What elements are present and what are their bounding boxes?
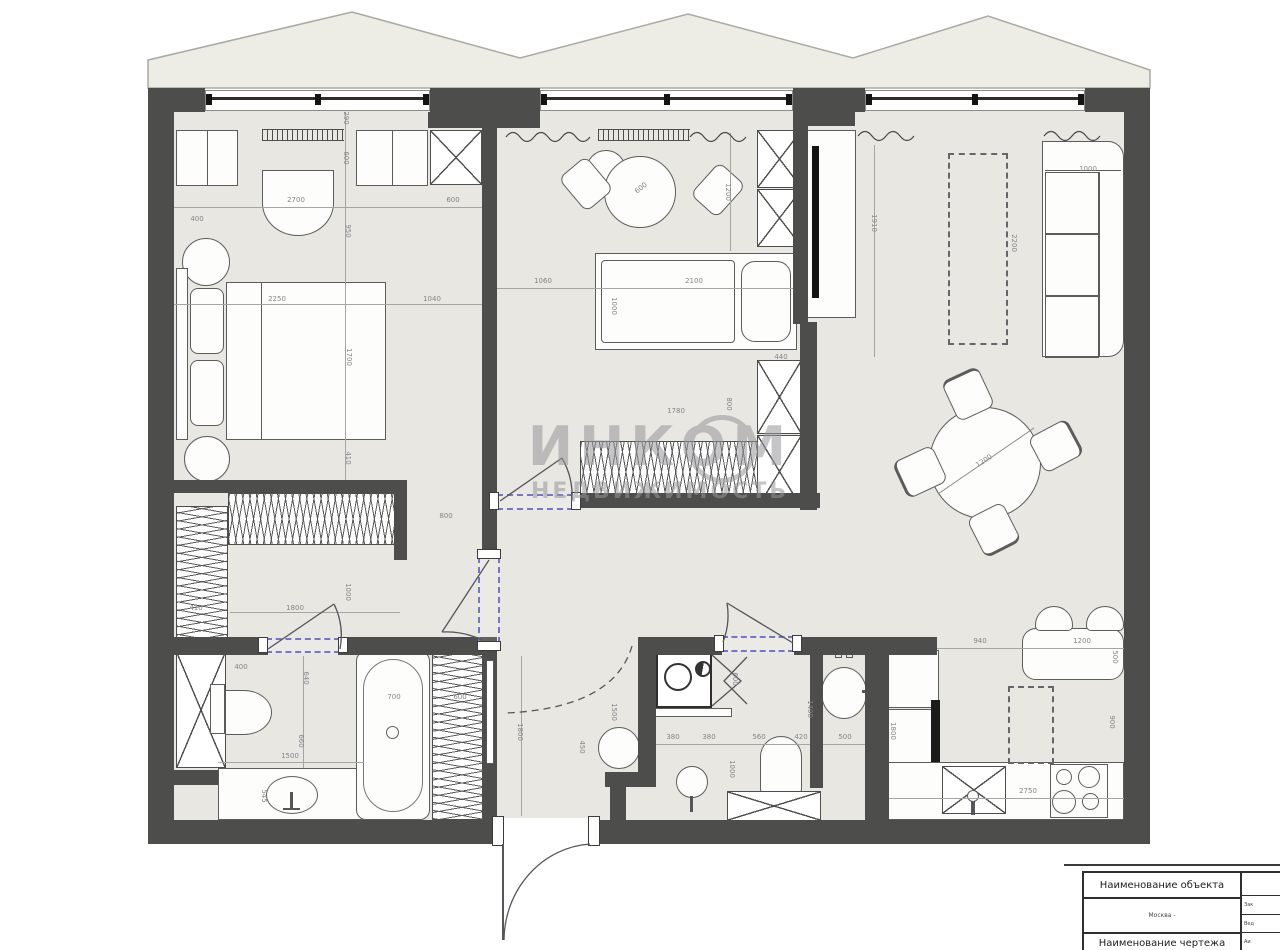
door-opening-dashed	[266, 638, 340, 653]
wall	[148, 637, 268, 655]
door-opening-dashed	[478, 557, 500, 643]
shower-stand	[690, 796, 693, 812]
door-jamb	[477, 549, 501, 559]
dim-label: 420	[794, 733, 807, 741]
title-block-header: Наименование объекта	[1084, 873, 1240, 899]
wardrobe-box	[430, 130, 482, 185]
dim-label: 410	[344, 451, 352, 464]
dim-label: 1800	[516, 723, 524, 741]
dim-label: 1800	[889, 722, 897, 740]
dim-label: 940	[973, 637, 986, 645]
dim-label: 410	[189, 604, 202, 612]
mattress	[601, 260, 735, 343]
door-jamb	[792, 635, 802, 652]
pillow	[741, 261, 791, 342]
burner	[1052, 790, 1076, 814]
dim-label: 1000	[610, 297, 618, 315]
washer-drum	[664, 663, 692, 691]
sofa-seat	[1045, 234, 1099, 296]
title-block-side-spacer	[1242, 873, 1280, 896]
sink	[821, 667, 867, 719]
dim-line	[230, 612, 400, 613]
balcony-zigzag	[148, 12, 1150, 88]
window-post	[423, 94, 429, 105]
dim-label: 1200	[1073, 637, 1091, 645]
dim-label: 1400	[806, 700, 814, 718]
wall	[810, 655, 823, 788]
layout-zone-dashed	[948, 153, 1008, 345]
dim-label: 640	[302, 671, 310, 684]
washer-dial	[695, 661, 711, 677]
dim-label: 800	[439, 512, 452, 520]
window	[865, 90, 1085, 111]
dim-label: 1060	[534, 277, 552, 285]
dim-label: 560	[752, 733, 765, 741]
dim-label: 900	[1108, 715, 1116, 728]
closet-hanging-rail	[228, 493, 400, 545]
sofa-seat	[1045, 296, 1099, 358]
dim-label: 400	[190, 215, 203, 223]
door-jamb	[489, 492, 499, 510]
dim-label: 600	[731, 672, 739, 685]
dim-label: 2750	[1019, 787, 1037, 795]
title-block-footer: Наименование чертежа	[1084, 934, 1240, 950]
master-bed	[226, 282, 386, 440]
dim-label: 2200	[1010, 234, 1018, 252]
door-jamb	[714, 635, 724, 652]
dim-label: 500	[838, 733, 851, 741]
door-jamb	[492, 816, 504, 846]
floor-plan-page: 2906002700400950600225010401700410800100…	[0, 0, 1280, 950]
wall	[590, 820, 1150, 844]
dim-line	[345, 112, 346, 480]
dim-label: 500	[1111, 650, 1119, 663]
bed-headboard	[227, 283, 262, 439]
tv-screen	[812, 146, 819, 298]
faucet-handle	[283, 808, 300, 810]
dim-label: 290	[342, 111, 350, 124]
dim-label: 700	[387, 693, 400, 701]
dim-label: 2100	[685, 277, 703, 285]
dim-line	[174, 207, 484, 208]
dresser	[176, 130, 238, 186]
dim-label: 1910	[870, 214, 878, 232]
nightstand	[182, 238, 230, 286]
dim-label: 1800	[286, 604, 304, 612]
oven	[931, 700, 940, 764]
dim-label: 800	[725, 397, 733, 410]
title-block-side-column: ЗакВедАи	[1242, 873, 1280, 950]
shower-head	[676, 766, 708, 798]
burner	[1082, 793, 1099, 810]
entry-opening	[504, 818, 588, 846]
dim-line	[497, 288, 797, 289]
door-jamb	[477, 641, 501, 651]
wall	[573, 493, 820, 508]
wall	[605, 772, 655, 787]
dim-label: 380	[702, 733, 715, 741]
dim-label: 545	[260, 789, 268, 802]
wall	[174, 770, 218, 785]
dim-label: 1000	[1079, 165, 1097, 173]
dim-label: 1700	[345, 348, 353, 366]
dim-label: 450	[578, 740, 586, 753]
toilet-tank	[210, 684, 225, 734]
door-jamb	[258, 637, 268, 653]
burner	[1056, 769, 1072, 785]
wall	[800, 322, 817, 510]
window	[540, 90, 793, 111]
dim-label: 400	[234, 663, 247, 671]
title-block-subheader: Москва -	[1084, 899, 1240, 934]
bed-bench	[176, 268, 188, 440]
window-post	[315, 94, 321, 105]
dim-label: 600	[453, 693, 466, 701]
sofa-back	[1099, 172, 1122, 356]
title-block-side-cell: Вед	[1242, 915, 1280, 934]
wall	[865, 650, 889, 822]
dim-label: 1200	[724, 183, 732, 201]
radiator	[262, 129, 344, 141]
sofa-seat	[1045, 172, 1099, 234]
dim-label: 1040	[423, 295, 441, 303]
closet-shelves	[176, 506, 228, 652]
wardrobe-box	[757, 360, 802, 434]
dim-label: 380	[666, 733, 679, 741]
dim-label: 660	[297, 734, 305, 747]
door-opening-dashed	[722, 636, 794, 652]
dim-line	[174, 304, 486, 305]
dresser-divider	[392, 131, 393, 185]
wall	[793, 88, 865, 112]
dim-label: 2250	[268, 295, 286, 303]
dim-label: 1000	[728, 760, 736, 778]
dim-label: 1500	[610, 703, 618, 721]
nightstand	[184, 436, 230, 482]
entry-door-swing	[504, 844, 590, 940]
kitchen-faucet-stem	[971, 801, 975, 815]
title-block-main: Наименование объекта Москва - Наименован…	[1084, 873, 1242, 950]
title-block-side-cell: Аи	[1242, 933, 1280, 950]
dim-label: 950	[344, 224, 352, 237]
fridge-dashed	[1008, 686, 1054, 764]
sliding-door-panel	[486, 660, 494, 764]
wall	[793, 112, 808, 324]
window	[205, 90, 430, 111]
dim-line	[874, 145, 875, 357]
window-post	[1078, 94, 1084, 105]
door-jamb	[338, 637, 348, 653]
dim-label: 600	[446, 196, 459, 204]
bathtub-drain	[386, 726, 399, 739]
dim-label: 600	[342, 151, 350, 164]
cushion	[190, 360, 224, 426]
title-block-side-cell: Зак	[1242, 896, 1280, 915]
dim-label: 1780	[667, 407, 685, 415]
dresser-divider	[207, 131, 208, 185]
bar-counter	[1022, 628, 1124, 680]
door-jamb	[588, 816, 600, 846]
burner	[1078, 766, 1100, 788]
pouf	[598, 727, 640, 769]
wall	[430, 88, 540, 112]
window-post	[866, 94, 872, 105]
wall	[1124, 88, 1150, 844]
dim-line	[218, 762, 364, 763]
title-block: Наименование объекта Москва - Наименован…	[1082, 871, 1280, 950]
shelf	[654, 708, 732, 717]
window-post	[664, 94, 670, 105]
wall	[338, 637, 497, 655]
dim-line	[872, 798, 1124, 799]
wall	[394, 480, 407, 560]
bench	[727, 791, 821, 821]
dim-label: 1500	[281, 752, 299, 760]
door-jamb	[571, 492, 581, 510]
cushion	[190, 288, 224, 354]
wall	[656, 637, 722, 655]
dim-label: 2700	[287, 196, 305, 204]
dim-label: 440	[774, 353, 787, 361]
wall	[148, 480, 407, 493]
window-post	[972, 94, 978, 105]
wall	[148, 820, 504, 844]
window-post	[786, 94, 792, 105]
title-block-top-line	[1064, 864, 1280, 866]
dresser	[356, 130, 428, 186]
door-opening-dashed	[497, 494, 573, 510]
wall	[148, 88, 174, 844]
dim-line	[656, 744, 868, 745]
wall	[638, 637, 656, 787]
dim-label: 1000	[344, 583, 352, 601]
wall	[610, 787, 626, 822]
window-post	[541, 94, 547, 105]
sofa	[1042, 141, 1124, 357]
window-post	[206, 94, 212, 105]
radiator	[598, 129, 690, 141]
